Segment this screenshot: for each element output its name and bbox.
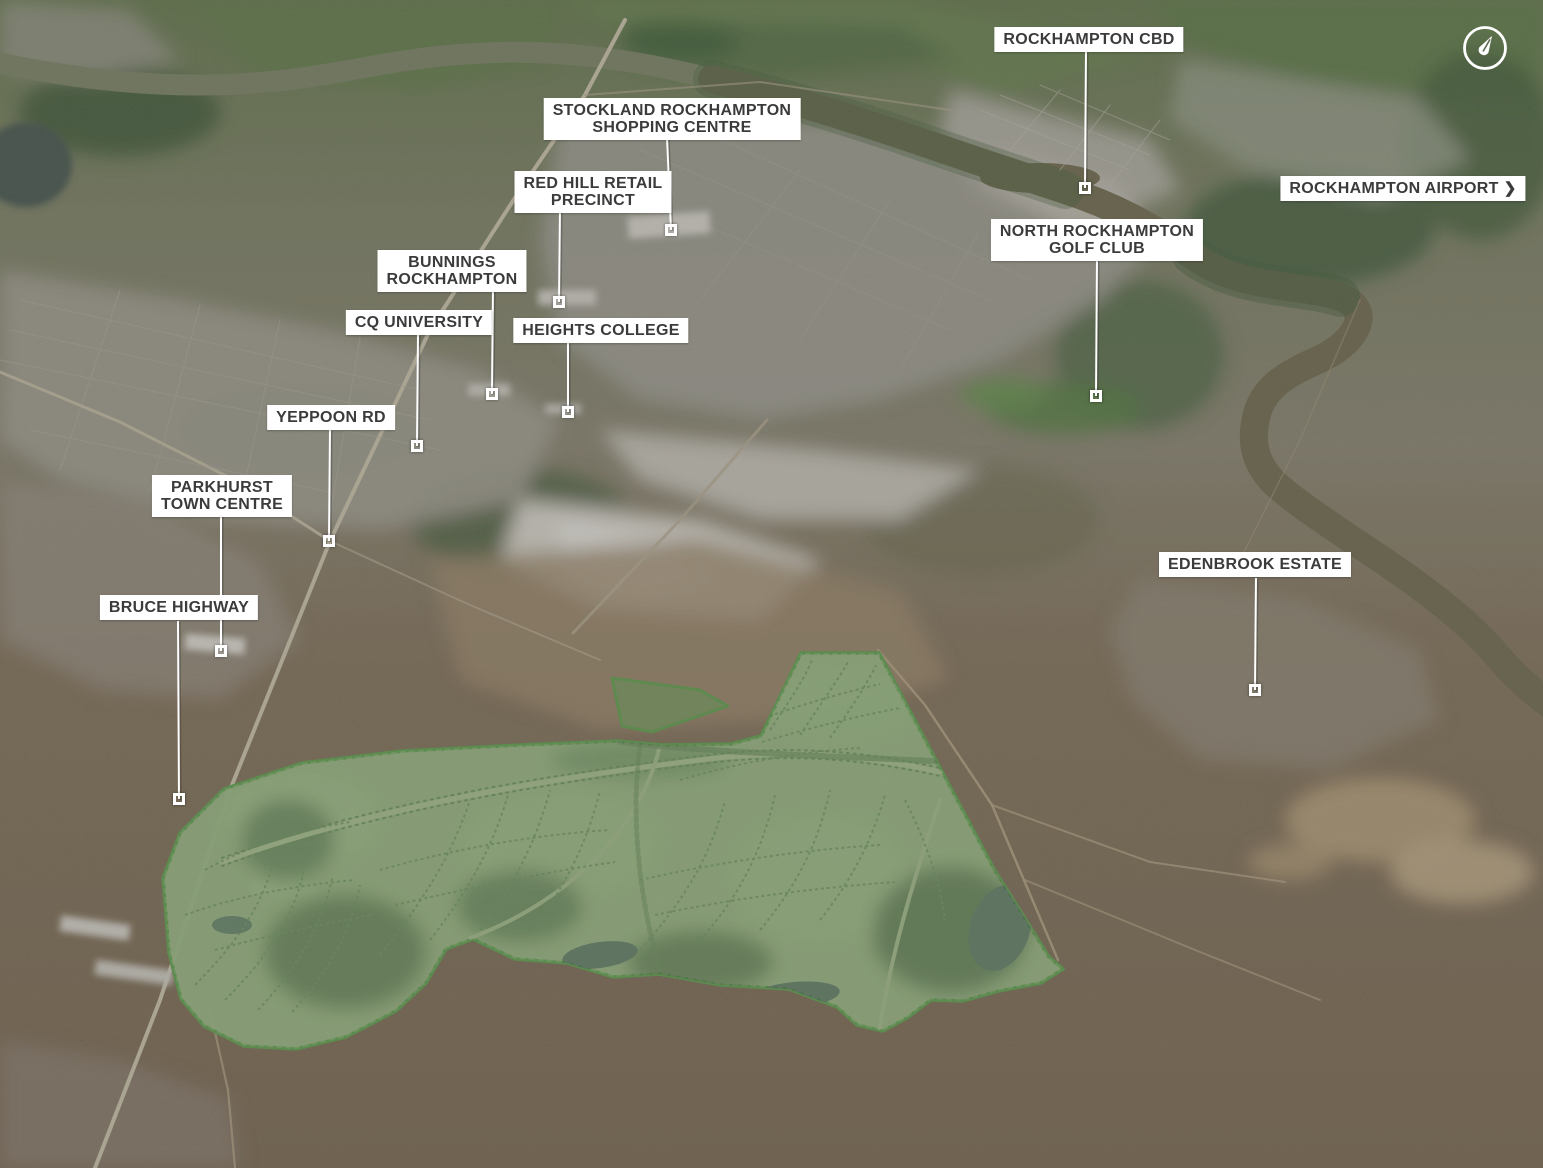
bruce-highway-label: BRUCE HIGHWAY [100, 595, 258, 620]
parkhurst-town-centre-text-line-2: TOWN CENTRE [161, 496, 283, 513]
north-rockhampton-golf-club-text-line-1: NORTH ROCKHAMPTON [1000, 223, 1194, 240]
red-hill-retail-precinct-label: RED HILL RETAILPRECINCT [514, 171, 671, 213]
cq-university-label: CQ UNIVERSITY [346, 310, 492, 335]
edenbrook-estate-label: EDENBROOK ESTATE [1159, 552, 1351, 577]
yeppoon-rd-text-line-1: YEPPOON RD [276, 409, 386, 426]
stockland-rockhampton-shopping-centre-text-line-1: STOCKLAND ROCKHAMPTON [553, 102, 792, 119]
yeppoon-rd-marker [323, 535, 335, 547]
heights-college-marker [562, 406, 574, 418]
bunnings-rockhampton-label: BUNNINGSROCKHAMPTON [377, 250, 526, 292]
heights-college-text-line-1: HEIGHTS COLLEGE [522, 322, 679, 339]
red-hill-retail-precinct-text-line-1: RED HILL RETAIL [523, 175, 662, 192]
bunnings-rockhampton-text-line-1: BUNNINGS [386, 254, 517, 271]
north-rockhampton-golf-club-marker [1090, 390, 1102, 402]
bunnings-rockhampton-marker [486, 388, 498, 400]
north-rockhampton-golf-club-text-line-2: GOLF CLUB [1000, 240, 1194, 257]
stockland-rockhampton-shopping-centre-text-line-2: SHOPPING CENTRE [553, 119, 792, 136]
bunnings-rockhampton-text-line-2: ROCKHAMPTON [386, 271, 517, 288]
chevron-right-icon[interactable]: ❯ [1504, 180, 1517, 197]
compass-north-icon[interactable] [1461, 24, 1509, 72]
heights-college-label: HEIGHTS COLLEGE [513, 318, 688, 343]
edenbrook-estate-marker [1249, 684, 1261, 696]
stockland-rockhampton-shopping-centre-marker [665, 224, 677, 236]
parkhurst-town-centre-label: PARKHURSTTOWN CENTRE [152, 475, 292, 517]
north-rockhampton-golf-club-label: NORTH ROCKHAMPTONGOLF CLUB [991, 219, 1203, 261]
red-hill-retail-precinct-text-line-2: PRECINCT [523, 192, 662, 209]
cq-university-marker [411, 440, 423, 452]
bruce-highway-text-line-1: BRUCE HIGHWAY [109, 599, 249, 616]
rockhampton-cbd-text-line-1: ROCKHAMPTON CBD [1003, 31, 1174, 48]
edenbrook-estate-text-line-1: EDENBROOK ESTATE [1168, 556, 1342, 573]
cq-university-text-line-1: CQ UNIVERSITY [355, 314, 483, 331]
rockhampton-cbd-label: ROCKHAMPTON CBD [994, 27, 1183, 52]
aerial-map: ROCKHAMPTON CBDSTOCKLAND ROCKHAMPTONSHOP… [0, 0, 1543, 1168]
parkhurst-town-centre-marker [215, 645, 227, 657]
bruce-highway-marker [173, 793, 185, 805]
stockland-rockhampton-shopping-centre-label: STOCKLAND ROCKHAMPTONSHOPPING CENTRE [544, 98, 801, 140]
rockhampton-airport-text-line-1: ROCKHAMPTON AIRPORT❯ [1289, 180, 1516, 197]
parkhurst-town-centre-text-line-1: PARKHURST [161, 479, 283, 496]
yeppoon-rd-label: YEPPOON RD [267, 405, 395, 430]
rockhampton-airport-label[interactable]: ROCKHAMPTON AIRPORT❯ [1280, 176, 1525, 201]
rockhampton-cbd-marker [1079, 182, 1091, 194]
red-hill-retail-precinct-marker [553, 296, 565, 308]
